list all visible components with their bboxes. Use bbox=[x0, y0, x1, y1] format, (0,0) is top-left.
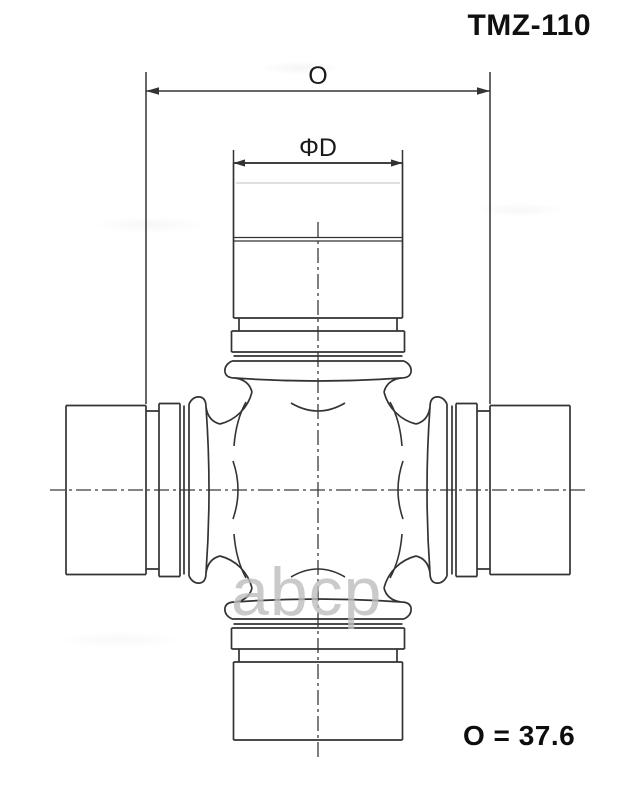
d-dimension: ΦD bbox=[234, 134, 403, 167]
o-dimension-label: O bbox=[308, 62, 327, 90]
o-arrow-left bbox=[146, 87, 159, 94]
watermark: abcp bbox=[231, 553, 382, 631]
o-value: O = 37.6 bbox=[463, 719, 575, 752]
o-arrow-right bbox=[477, 87, 490, 94]
d-dimension-label: ΦD bbox=[299, 134, 337, 162]
catalog-drawing-page: TMZ-110 O ΦD bbox=[0, 0, 641, 800]
cap-top-mid-line bbox=[234, 238, 403, 242]
dimension-values: O = 37.6 D = 22.5 bbox=[463, 653, 575, 800]
